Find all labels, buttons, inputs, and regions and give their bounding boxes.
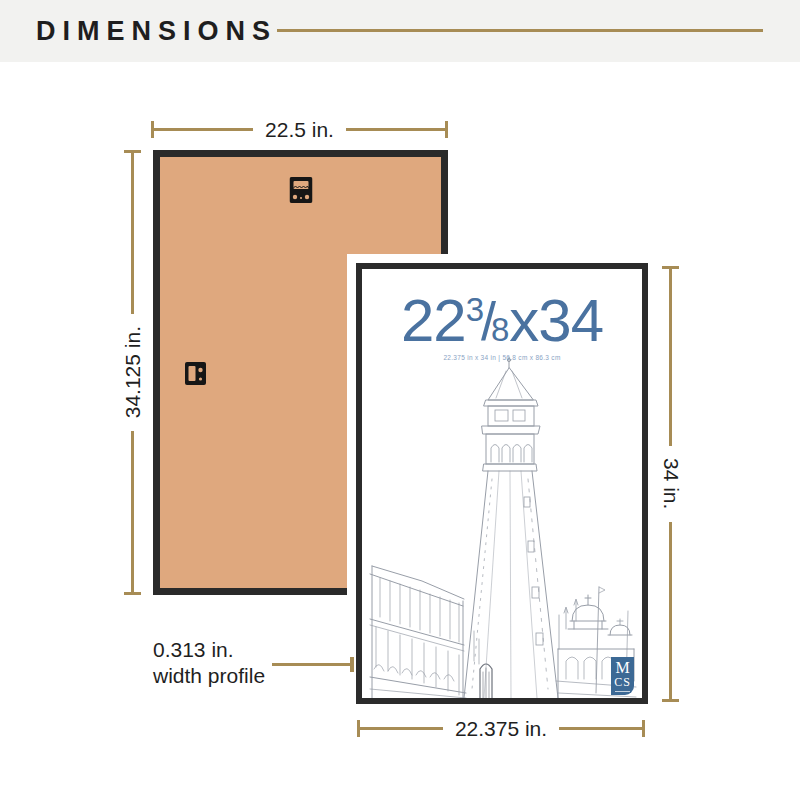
front-height-label: 34 in. — [659, 446, 683, 521]
dimension-front-width: 22.375 in. — [357, 720, 645, 737]
width-profile-value: 0.313 in. — [153, 637, 265, 663]
frame-front-face: 223/8x34 22.375 in x 34 in | 56.8 cm x 8… — [362, 269, 642, 698]
sawtooth-hanger-icon — [289, 177, 312, 203]
dimension-tick — [445, 121, 448, 138]
dimension-line — [154, 128, 253, 131]
back-height-label: 34.125 in. — [121, 314, 145, 430]
size-whole: 22 — [401, 287, 466, 354]
frame-size-title: 223/8x34 — [362, 291, 642, 351]
logo-letter-m: M — [611, 660, 634, 676]
frame-front-view: 223/8x34 22.375 in x 34 in | 56.8 cm x 8… — [356, 263, 648, 704]
width-profile-pointer-line — [272, 663, 350, 666]
front-width-label: 22.375 in. — [443, 717, 559, 741]
dimension-line — [131, 153, 134, 314]
dimension-tick — [662, 699, 679, 702]
size-suffix: x34 — [509, 287, 603, 354]
dimension-line — [131, 431, 134, 592]
width-profile-caption: width profile — [153, 663, 265, 689]
dimension-front-height: 34 in. — [662, 266, 679, 702]
dimension-line — [669, 522, 672, 699]
header-divider-line — [277, 29, 763, 32]
size-fraction-denominator: 8 — [491, 311, 509, 348]
logo-divider — [615, 691, 630, 692]
width-profile-pointer-tick — [350, 657, 354, 672]
dimension-tick — [642, 720, 645, 737]
logo-letters-cs: CS — [611, 676, 634, 688]
frame-size-subtitle: 22.375 in x 34 in | 56.8 cm x 86.3 cm — [362, 354, 642, 361]
dimension-back-height: 34.125 in. — [124, 150, 141, 595]
width-profile-callout: 0.313 in. width profile — [153, 637, 265, 689]
back-width-label: 22.5 in. — [253, 118, 346, 142]
header-band: DIMENSIONS — [0, 0, 800, 62]
mcs-brand-logo: M CS — [611, 657, 634, 695]
page-title: DIMENSIONS — [36, 0, 277, 62]
sawtooth-hanger-side-icon — [185, 362, 206, 385]
dimension-line — [559, 727, 642, 730]
dimension-line — [669, 269, 672, 446]
dimension-back-width: 22.5 in. — [151, 121, 448, 138]
dimension-line — [360, 727, 443, 730]
dimensions-product-image: DIMENSIONS 22.5 in. 34.125 in. — [0, 0, 800, 800]
dimension-tick — [124, 592, 141, 595]
dimension-line — [346, 128, 445, 131]
